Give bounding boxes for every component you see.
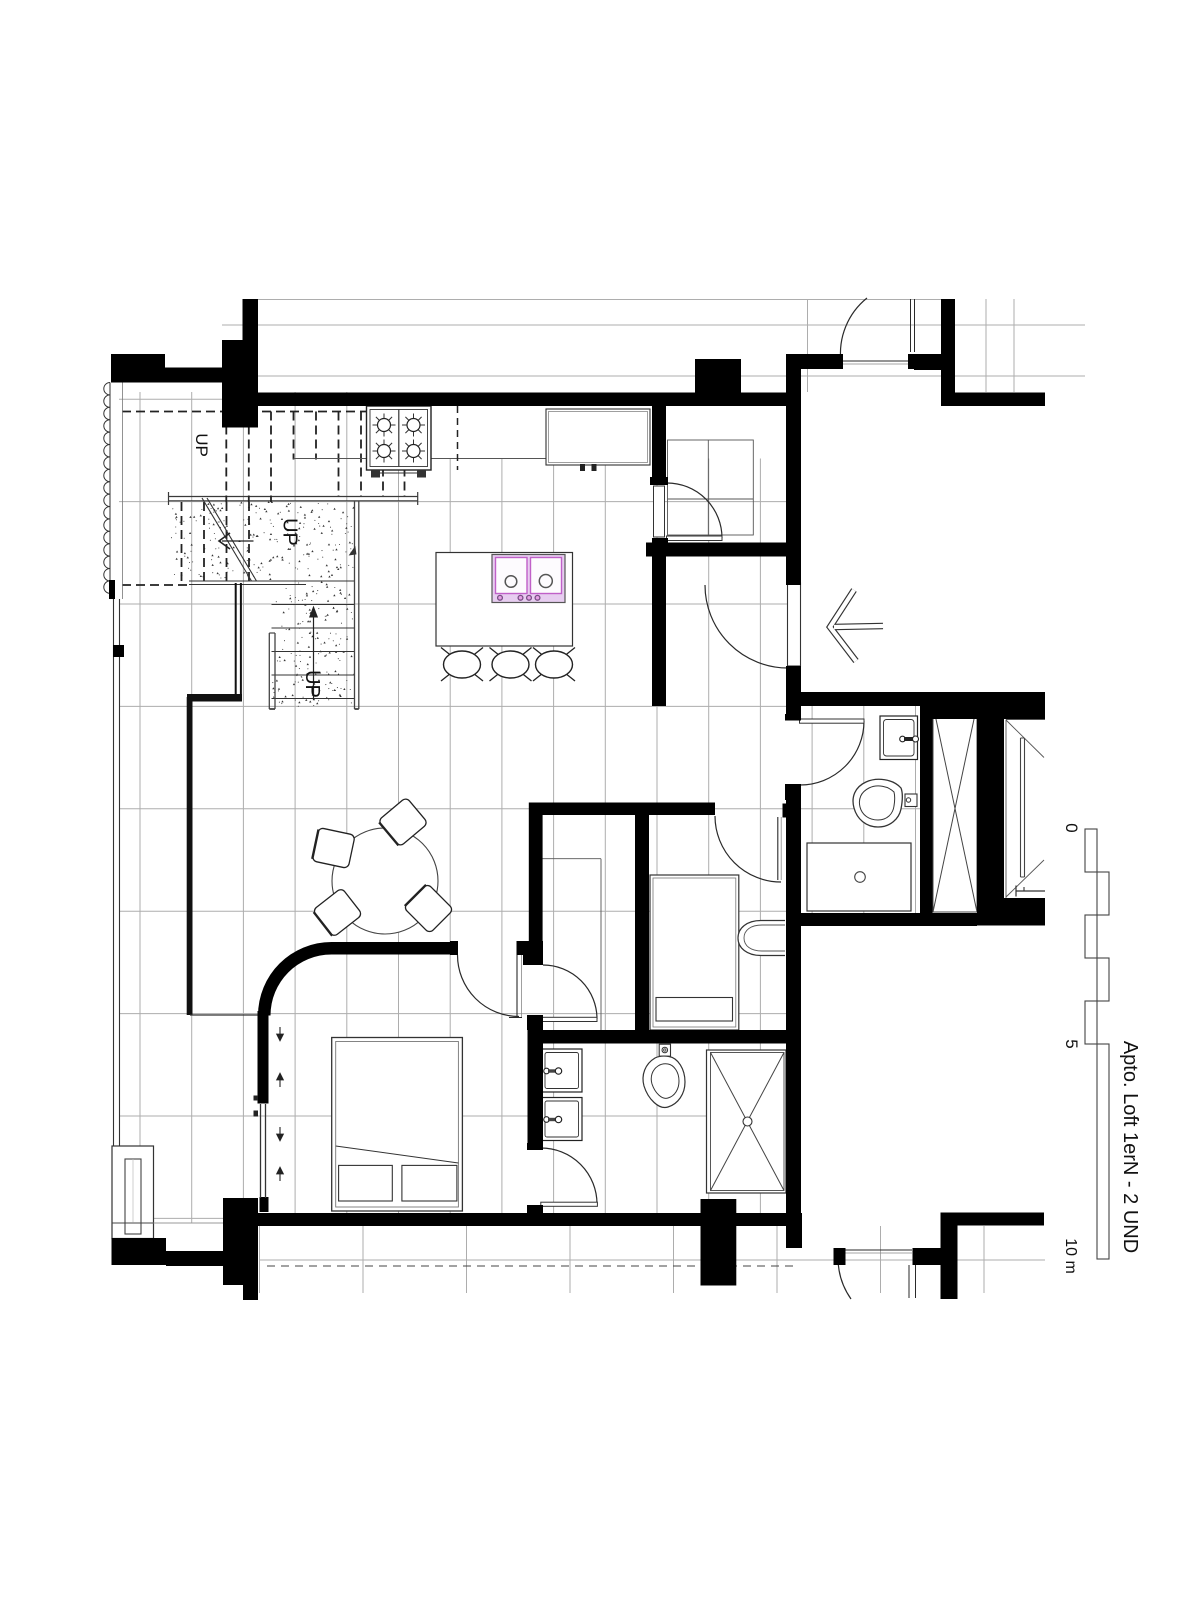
svg-text:10 m: 10 m xyxy=(1062,1238,1079,1274)
svg-text:Apto. Loft 1erN - 2 UND: Apto. Loft 1erN - 2 UND xyxy=(1119,1041,1141,1253)
svg-text:5: 5 xyxy=(1062,1039,1081,1048)
svg-text:UP: UP xyxy=(279,518,301,546)
svg-text:UP: UP xyxy=(301,670,323,698)
svg-text:UP: UP xyxy=(192,433,211,457)
svg-text:0: 0 xyxy=(1062,823,1081,832)
